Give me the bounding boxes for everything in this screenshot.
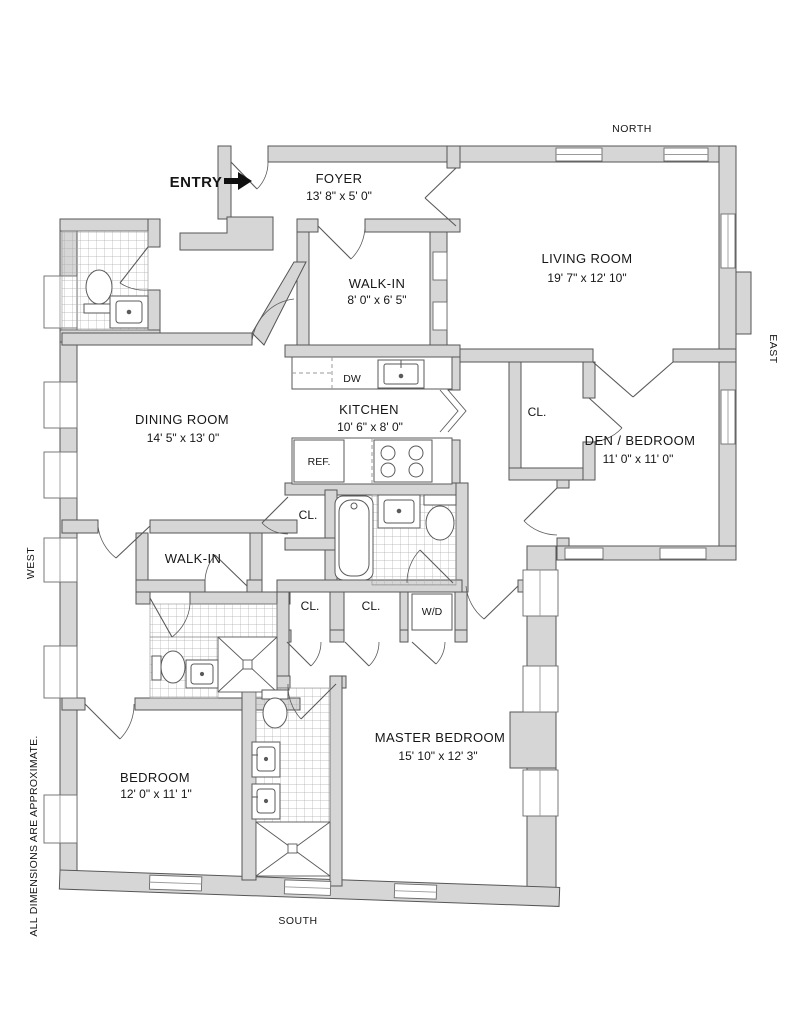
toilet-icon — [262, 690, 288, 728]
wall-living-south-a — [455, 349, 593, 362]
room-dims-walkin-upper: 8' 0" x 6' 5" — [347, 293, 406, 307]
wall-cl3-stub — [400, 630, 408, 642]
room-label-foyer: FOYER — [316, 171, 363, 186]
wall-clsmall-south — [285, 538, 337, 550]
refrigerator-label: REF. — [308, 456, 331, 468]
compass-west: WEST — [25, 547, 37, 579]
wall-kitchen-north — [285, 345, 460, 357]
washer-dryer-label: W/D — [422, 606, 443, 618]
windows-master-east — [523, 570, 558, 816]
wall-walkinlow-south-a — [136, 580, 205, 592]
wall-den-west-a — [557, 480, 569, 488]
living-den-double-door — [593, 362, 673, 397]
pier-east — [736, 272, 751, 334]
room-dims-den: 11' 0" x 11' 0" — [603, 452, 674, 466]
wall-den-west-b — [557, 538, 569, 546]
vanity-sink-icon — [252, 784, 280, 819]
wall-foyer-south-b — [365, 219, 460, 232]
disclaimer-text: ALL DIMENSIONS ARE APPROXIMATE. — [28, 735, 40, 936]
walkin-upper-door — [318, 226, 365, 259]
compass-east: EAST — [767, 334, 779, 364]
wall-mbath-west — [242, 676, 256, 880]
room-dims-foyer: 13' 8" x 5' 0" — [306, 189, 372, 203]
floor-plan-page: ENTRY FOYER 13' 8" x 5' 0" LIVING ROOM 1… — [0, 0, 800, 1035]
sink-icon — [186, 660, 218, 688]
foyer-living-double-door — [425, 168, 456, 226]
entry-door — [231, 162, 268, 189]
dishwasher-label: DW — [343, 373, 361, 385]
room-dims-kitchen: 10' 6" x 8' 0" — [337, 420, 403, 434]
compass-south: SOUTH — [278, 915, 317, 927]
den-door — [524, 488, 557, 535]
sink-icon — [378, 495, 420, 528]
room-label-walkin-upper: WALK-IN — [349, 276, 406, 291]
closet-label: CL. — [299, 508, 318, 522]
pier-master-east — [510, 712, 556, 768]
wd-closet-door — [412, 642, 445, 664]
wall-vestibule — [180, 217, 273, 250]
wall-bath2-north-a — [136, 592, 150, 604]
closet2-door — [345, 642, 379, 666]
room-dims-bedroom: 12' 0" x 11' 1" — [120, 787, 192, 801]
room-label-bedroom: BEDROOM — [120, 770, 190, 785]
sink-icon — [110, 296, 148, 328]
wall-dining-south-a — [62, 520, 98, 533]
wall-walkin-west — [297, 232, 309, 347]
wall-living-south-b — [673, 349, 736, 362]
wall-powder-east-a — [148, 219, 160, 247]
kitchen-counter-top — [292, 357, 452, 389]
wall-dining-north — [62, 333, 252, 345]
stove-icon — [374, 440, 432, 482]
closet-label: CL. — [301, 599, 320, 613]
room-dims-master: 15' 10" x 12' 3" — [398, 749, 477, 763]
wall-mbath-east — [330, 676, 342, 886]
room-label-kitchen: KITCHEN — [339, 402, 399, 417]
wall-dencl-south — [509, 468, 595, 480]
toilet-icon — [152, 651, 185, 683]
master-shower-icon — [256, 822, 330, 876]
wall-living-west — [447, 146, 460, 168]
wall-bath2-east — [277, 592, 289, 690]
floor-plan-svg: ENTRY FOYER 13' 8" x 5' 0" LIVING ROOM 1… — [0, 0, 800, 1035]
wall-dencl-west — [509, 362, 521, 480]
bedroom-door — [85, 704, 134, 739]
wall-midbath-east — [456, 483, 468, 592]
room-dims-living: 19' 7" x 12' 10" — [547, 271, 626, 285]
wall-walkinlow-south-b — [247, 580, 262, 592]
wall-dining-south-b — [150, 520, 297, 533]
kitchen-open-arch — [440, 390, 466, 432]
bathtub-icon — [335, 496, 373, 580]
entry-label: ENTRY — [170, 174, 223, 191]
room-label-walkin-lower: WALK-IN — [165, 551, 222, 566]
compass-north: NORTH — [612, 123, 652, 135]
master-bedroom-door — [466, 586, 518, 619]
vanity-sink-icon — [252, 742, 280, 777]
wall-dencl-east-a — [583, 362, 595, 398]
closet-label: CL. — [528, 405, 547, 419]
room-label-dining: DINING ROOM — [135, 412, 229, 427]
shower-stall-icon — [218, 637, 277, 692]
room-label-master: MASTER BEDROOM — [375, 730, 506, 745]
wall-foyer-south-a — [297, 219, 318, 232]
wall-powder-north — [60, 219, 160, 231]
wall-kitchen-south — [285, 483, 468, 495]
closet-label: CL. — [362, 599, 381, 613]
toilet-icon — [424, 495, 456, 540]
wall-bedroom-north-a — [62, 698, 85, 710]
wall-cl2-stub — [330, 630, 344, 642]
room-label-den: DEN / BEDROOM — [585, 433, 696, 448]
room-label-living: LIVING ROOM — [541, 251, 632, 266]
wall-wd-stub — [455, 630, 467, 642]
room-dims-dining: 14' 5" x 13' 0" — [147, 431, 219, 445]
wall-bath2-north-b — [190, 592, 290, 604]
closet1-door — [287, 642, 321, 666]
